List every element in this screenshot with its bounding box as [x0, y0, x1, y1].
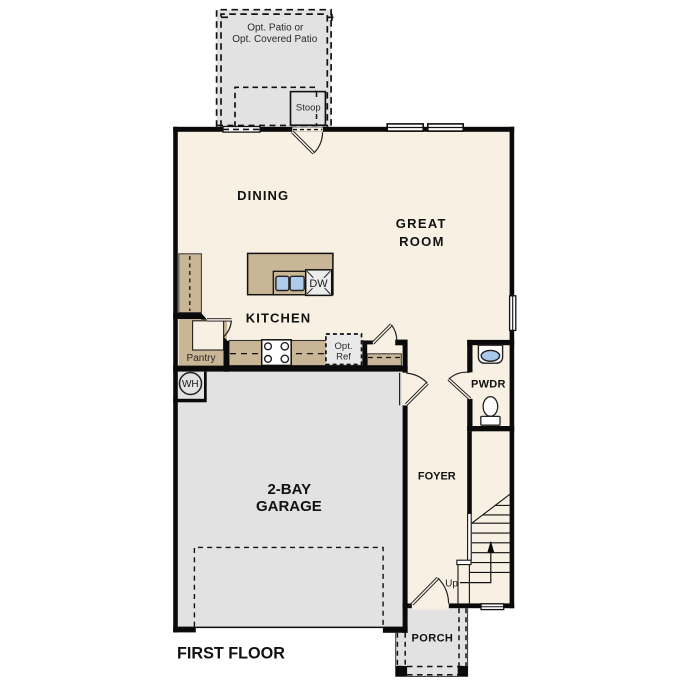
- svg-text:DW: DW: [309, 278, 328, 290]
- svg-text:WH: WH: [182, 379, 199, 390]
- svg-text:FOYER: FOYER: [418, 470, 456, 482]
- svg-text:Opt. Patio or: Opt. Patio or: [247, 23, 304, 34]
- svg-text:FIRST FLOOR: FIRST FLOOR: [177, 645, 285, 663]
- svg-text:Up: Up: [445, 579, 458, 590]
- svg-text:PWDR: PWDR: [471, 379, 506, 391]
- svg-text:Opt.: Opt.: [335, 341, 353, 352]
- svg-text:PORCH: PORCH: [412, 632, 454, 644]
- svg-text:GARAGE: GARAGE: [256, 498, 322, 515]
- svg-text:2-BAY: 2-BAY: [267, 481, 311, 498]
- svg-text:DINING: DINING: [237, 188, 289, 203]
- svg-text:Ref: Ref: [336, 352, 351, 363]
- svg-text:Opt. Covered Patio: Opt. Covered Patio: [232, 34, 317, 45]
- svg-text:ROOM: ROOM: [399, 234, 445, 249]
- svg-text:KITCHEN: KITCHEN: [246, 311, 311, 326]
- svg-text:Pantry: Pantry: [187, 353, 216, 364]
- svg-text:GREAT: GREAT: [396, 216, 447, 231]
- svg-text:Stoop: Stoop: [296, 103, 321, 114]
